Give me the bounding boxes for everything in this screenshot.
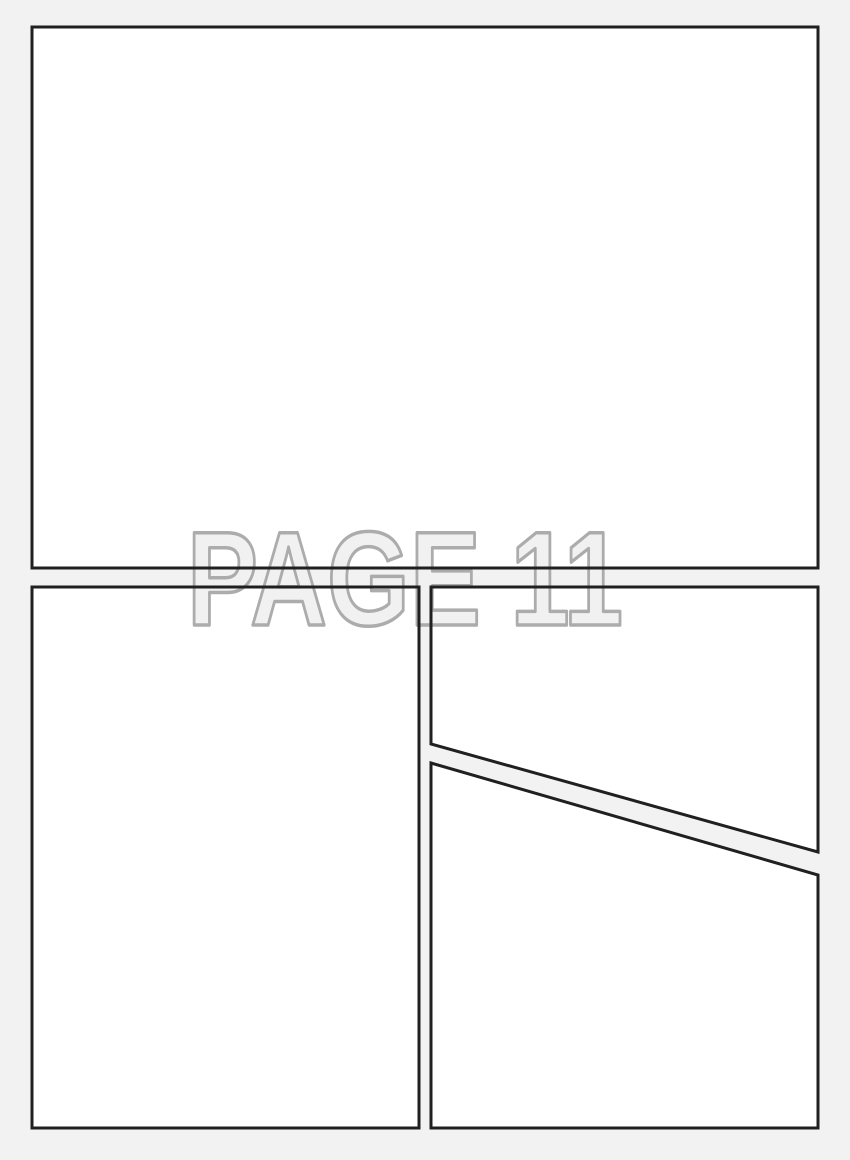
comic-page-canvas: PAGE 11	[0, 0, 850, 1160]
panel-1-area	[32, 27, 818, 568]
comic-page-template: PAGE 11	[0, 0, 850, 1160]
page-number-watermark: PAGE 11	[187, 505, 623, 654]
panel-2-area	[32, 587, 419, 1128]
